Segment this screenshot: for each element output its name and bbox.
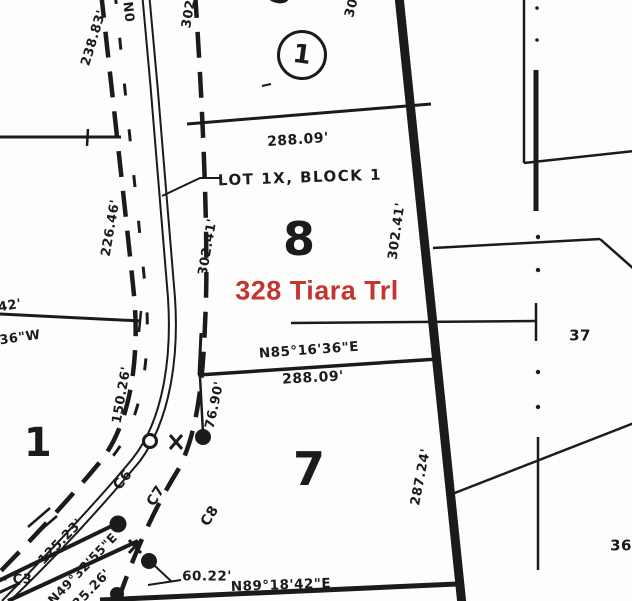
right-parcel-line [433,239,600,248]
lot7-number: 7 [293,446,325,492]
bearing-fragment-n0: N0 [120,1,135,23]
filled-circle-point-3 [141,553,157,569]
open-circle-point [144,435,157,448]
dim60-leader-line-b [148,580,181,585]
dim-60-22: 60.22' [182,570,232,584]
road-right-edge [118,0,206,601]
west-lot-line-mid-tick [139,311,141,332]
dim60-leader-line-a [155,566,172,582]
lot36-number: 36 [610,539,632,554]
filled-circle-point-4 [110,587,124,601]
filled-circle-point-2 [110,516,127,533]
lot8-north-boundary [187,104,431,124]
west-lot-line-mid [0,314,141,321]
lot1-number: 1 [24,423,52,463]
stray-dash [262,84,271,86]
bottomright-diagonal [447,423,632,496]
address-label: 328 Tiara Trl [235,278,399,305]
curve-c3-label: - C3 [2,574,33,587]
east-thick-boundary [399,0,462,601]
right-parcel-diagonal [600,239,632,270]
plat-map: 5 N0 302 30 1 238.83' 226.46' 150.26' 42… [0,0,632,601]
west-lot-line-top-tick [87,129,88,146]
lot7-corner-jog [199,333,201,375]
topright-horizontal [524,151,632,163]
filled-circle-point-1 [195,429,211,445]
lot8-number: 8 [283,216,315,262]
dim-288-09-mid: 288.09' [282,369,344,386]
dim-288-09-top: 288.09' [267,131,330,149]
east-survey-line [291,321,535,323]
road-centerline-a [2,0,169,601]
road-left-edge [0,0,136,590]
lot37-number: 37 [569,329,591,344]
bearing-n89-18-42e: N89°18'42"E [231,578,332,595]
lot1x-leader-line [162,178,221,196]
x-point-1 [170,435,182,449]
bearing-fragment-42: 42' [0,298,23,315]
